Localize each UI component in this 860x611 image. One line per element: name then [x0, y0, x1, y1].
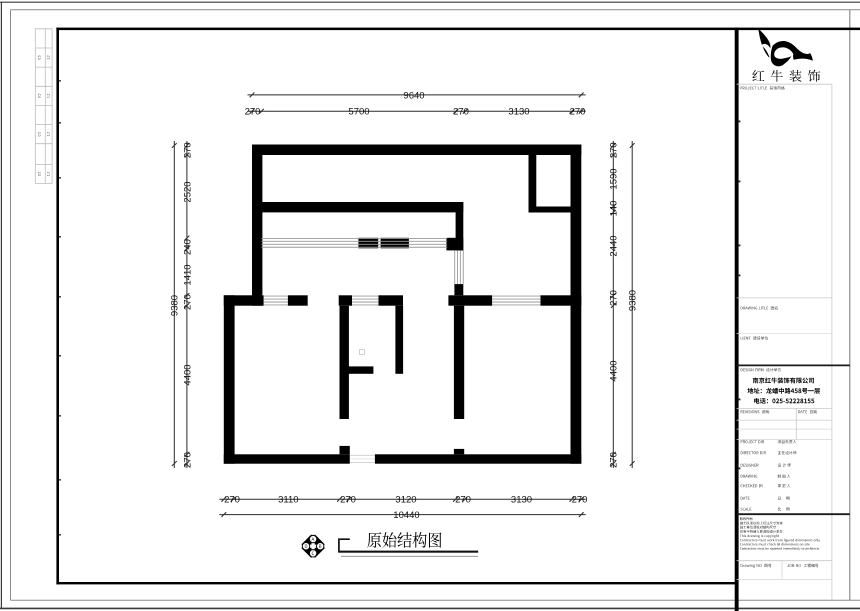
svg-text:270: 270: [609, 290, 620, 306]
svg-text:270: 270: [609, 142, 620, 158]
svg-text:2440: 2440: [609, 235, 620, 256]
svg-text:270: 270: [182, 142, 193, 158]
svg-text:1590: 1590: [609, 168, 620, 189]
svg-text:1.2: 1.2: [46, 93, 50, 98]
svg-text:0.5: 0.5: [37, 171, 41, 176]
svg-text:3120: 3120: [395, 495, 416, 506]
svg-text:270: 270: [572, 495, 588, 506]
svg-text:5700: 5700: [348, 107, 369, 118]
svg-text:4400: 4400: [182, 364, 193, 385]
svg-text:1.2: 1.2: [46, 55, 50, 60]
svg-text:1.2: 1.2: [46, 171, 50, 176]
svg-text:3130: 3130: [511, 495, 532, 506]
svg-text:0.5: 0.5: [37, 132, 41, 137]
svg-text:0.5: 0.5: [37, 55, 41, 60]
svg-text:270: 270: [182, 294, 193, 310]
svg-text:10440: 10440: [393, 510, 419, 521]
svg-text:270: 270: [182, 452, 193, 468]
svg-text:270: 270: [455, 495, 471, 506]
svg-text:9380: 9380: [628, 290, 639, 311]
svg-text:270: 270: [245, 107, 261, 118]
svg-text:3130: 3130: [508, 107, 529, 118]
svg-text:2520: 2520: [182, 181, 193, 202]
svg-text:270: 270: [224, 495, 240, 506]
svg-text:3110: 3110: [278, 495, 298, 506]
svg-text:270: 270: [570, 107, 586, 118]
svg-text:4400: 4400: [609, 360, 620, 381]
svg-text:1.2: 1.2: [46, 132, 50, 137]
svg-text:270: 270: [340, 495, 356, 506]
svg-text:1410: 1410: [182, 264, 193, 285]
svg-text:270: 270: [453, 107, 469, 118]
svg-text:0.5: 0.5: [37, 93, 41, 98]
svg-text:270: 270: [609, 452, 620, 468]
svg-text:140: 140: [609, 201, 620, 217]
svg-text:9640: 9640: [403, 90, 424, 101]
svg-text:9380: 9380: [170, 295, 181, 316]
svg-text:240: 240: [182, 239, 193, 255]
